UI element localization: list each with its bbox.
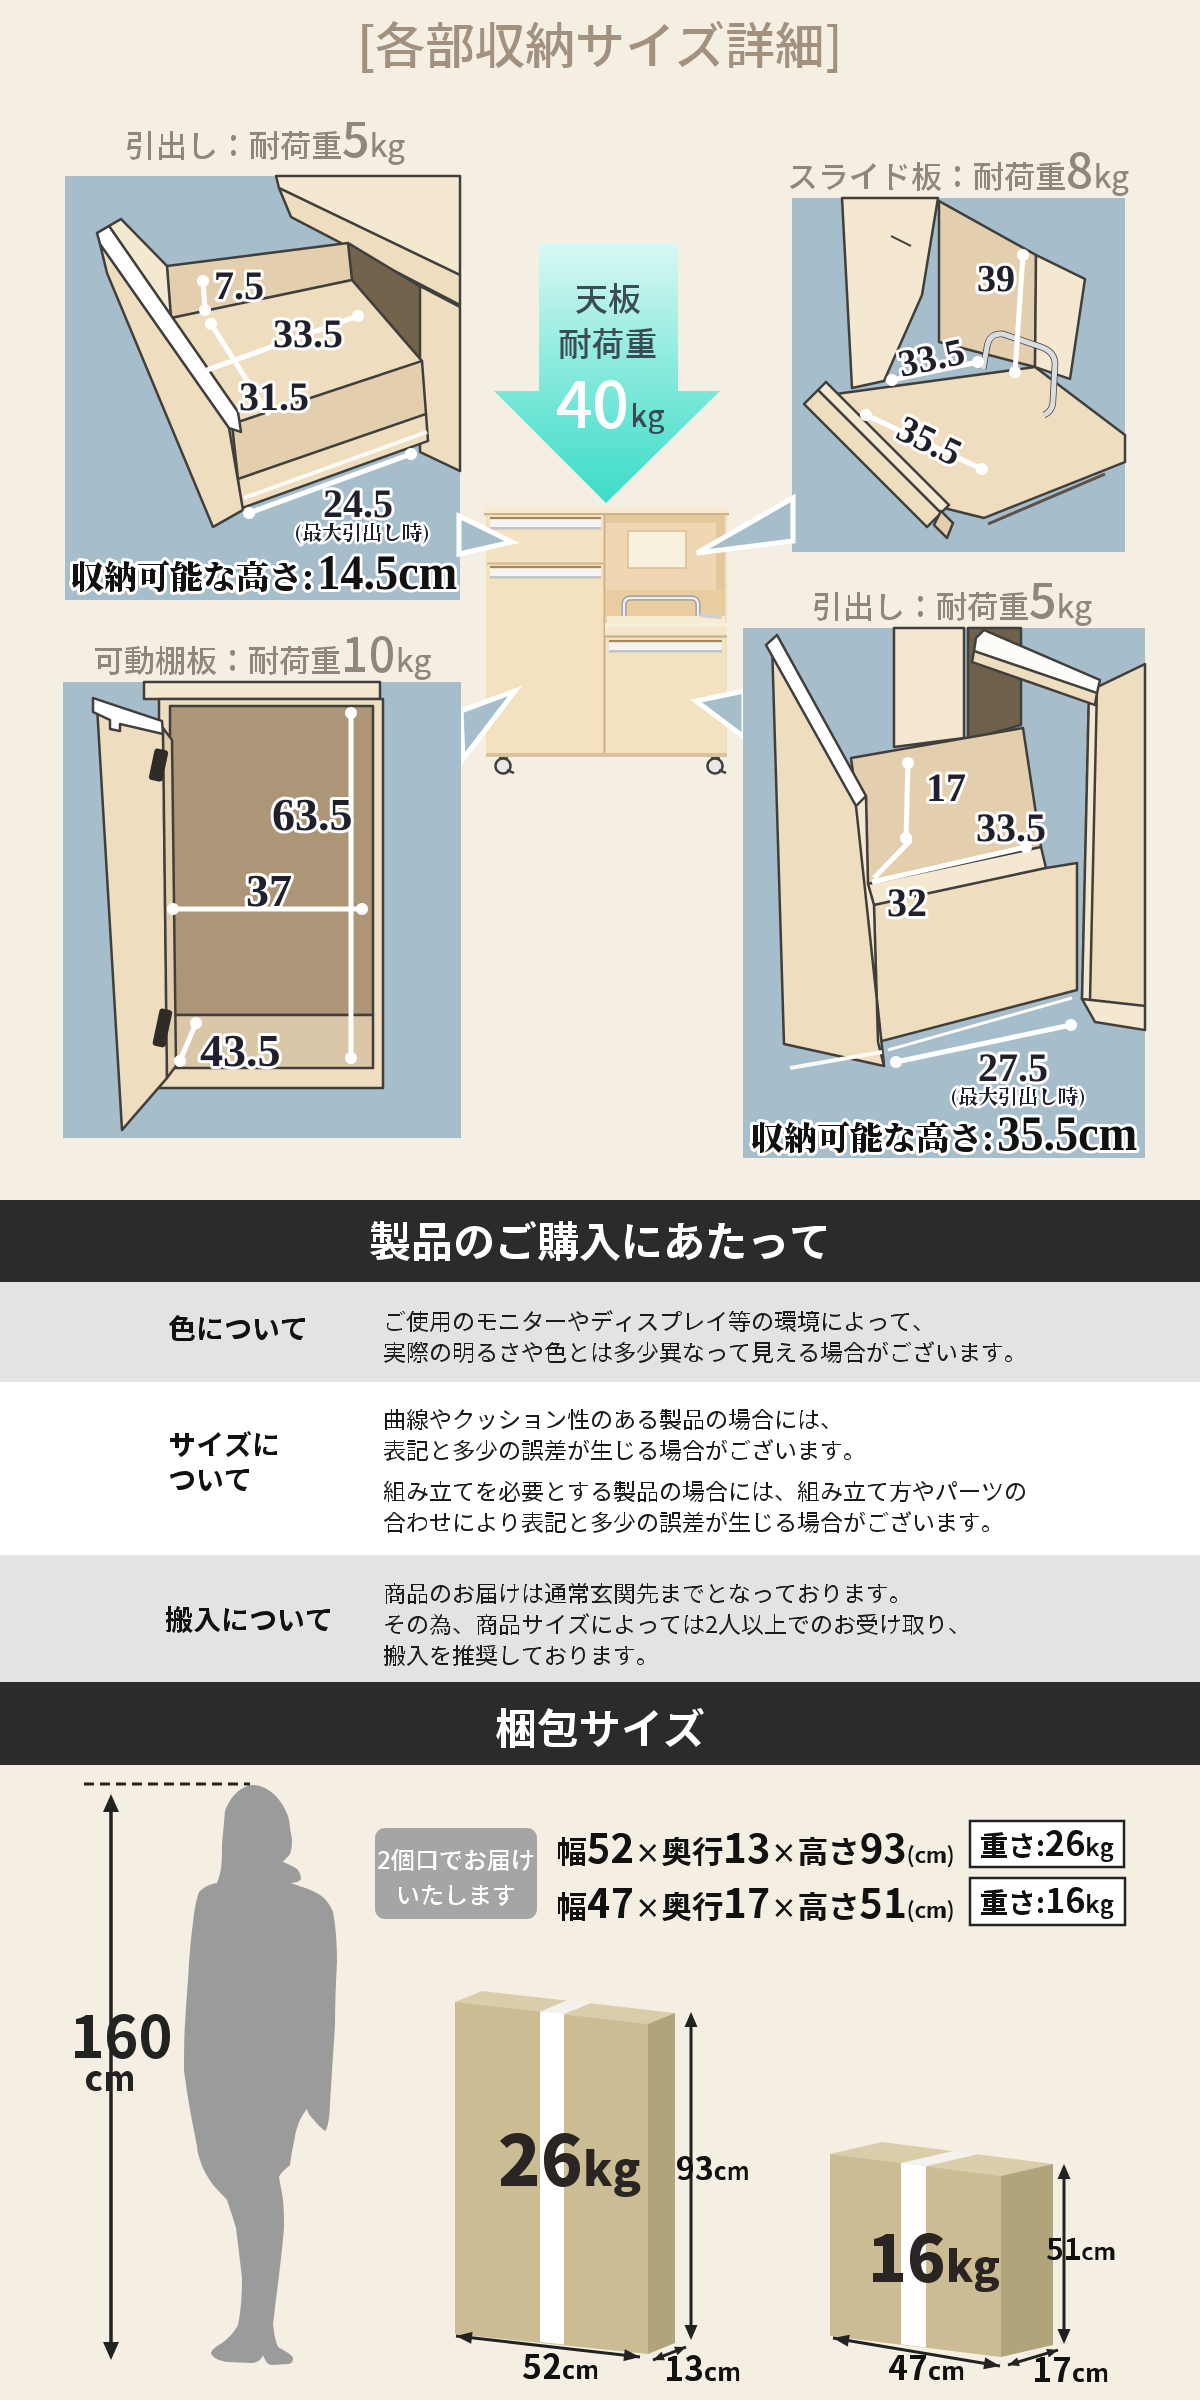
svg-text:27.5: 27.5	[978, 1045, 1048, 1090]
svg-text:7.5: 7.5	[214, 263, 264, 308]
svg-text:37: 37	[246, 865, 292, 916]
svg-text:31.5: 31.5	[239, 374, 309, 419]
svg-text:63.5: 63.5	[272, 789, 353, 840]
svg-text:43.5: 43.5	[200, 1025, 281, 1076]
svg-text:35.5cm: 35.5cm	[997, 1105, 1137, 1161]
svg-text:33.5: 33.5	[976, 805, 1046, 850]
svg-text:14.5cm: 14.5cm	[317, 544, 457, 600]
svg-text:17: 17	[926, 765, 966, 810]
svg-text:39: 39	[977, 258, 1015, 300]
svg-text:33.5: 33.5	[273, 311, 343, 356]
svg-text:24.5: 24.5	[323, 481, 393, 526]
svg-text:32: 32	[887, 880, 927, 925]
